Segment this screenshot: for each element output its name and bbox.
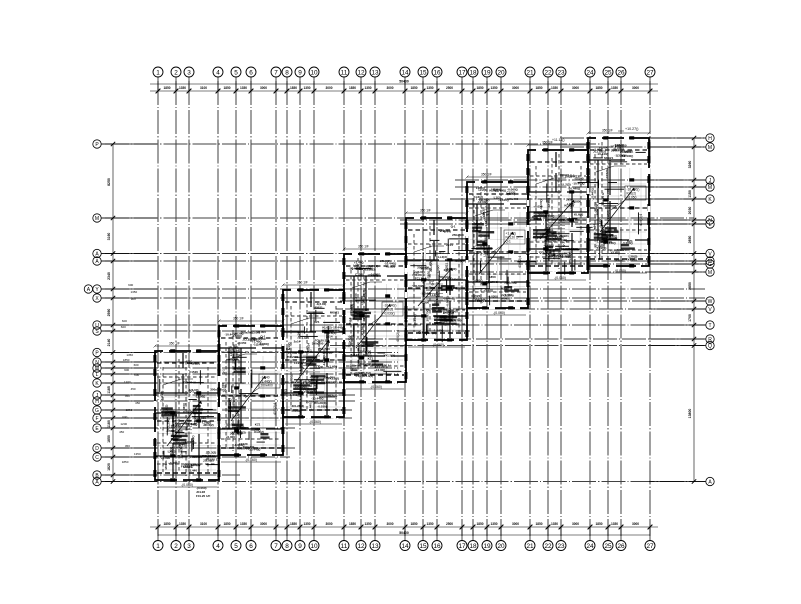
svg-text:3000: 3000 [386, 522, 393, 526]
svg-text:3000: 3000 [632, 86, 639, 90]
svg-text:1180: 1180 [107, 420, 111, 428]
svg-text:3000: 3000 [386, 86, 393, 90]
svg-text:3000: 3000 [512, 522, 519, 526]
svg-text:-(0.060): -(0.060) [493, 311, 505, 315]
svg-text:9: 9 [298, 69, 302, 76]
svg-text:6: 6 [249, 69, 253, 76]
svg-text:21: 21 [526, 69, 534, 76]
svg-text:16: 16 [433, 69, 441, 76]
svg-text:1350: 1350 [126, 353, 133, 357]
svg-text:17: 17 [458, 543, 466, 550]
svg-text:1850: 1850 [223, 86, 230, 90]
svg-text:+0.000: +0.000 [574, 177, 584, 181]
svg-text:23: 23 [557, 69, 565, 76]
svg-text:LL2(3): LL2(3) [569, 247, 578, 251]
svg-text:1850: 1850 [476, 522, 483, 526]
svg-text:450: 450 [119, 430, 124, 434]
svg-text:19: 19 [483, 543, 491, 550]
svg-text:1350: 1350 [611, 522, 618, 526]
svg-text:2x14: 2x14 [350, 353, 357, 357]
svg-text:14: 14 [401, 69, 409, 76]
svg-text:1350: 1350 [364, 86, 371, 90]
svg-text:-10.440(): -10.440() [596, 152, 608, 156]
svg-text:1: 1 [156, 543, 160, 550]
svg-text:26: 26 [617, 69, 625, 76]
svg-text:+0.000: +0.000 [288, 351, 298, 355]
svg-text:-10.440(): -10.440() [609, 144, 621, 148]
svg-text:21: 21 [526, 543, 534, 550]
svg-text:M: M [708, 270, 712, 276]
svg-text:200x400: 200x400 [174, 421, 186, 425]
svg-text:R: R [708, 337, 712, 343]
svg-text:1850: 1850 [122, 460, 129, 464]
svg-text:FCL20 1/F: FCL20 1/F [196, 494, 211, 498]
svg-text:1850: 1850 [349, 522, 356, 526]
svg-text:LL2(3): LL2(3) [430, 293, 439, 297]
svg-text:19: 19 [483, 69, 491, 76]
svg-text:5: 5 [234, 69, 238, 76]
svg-text:1850: 1850 [575, 199, 582, 203]
svg-text:1850: 1850 [223, 522, 230, 526]
svg-text:1350: 1350 [303, 86, 310, 90]
svg-text:L28(3): L28(3) [174, 454, 183, 458]
svg-text:1: 1 [156, 69, 160, 76]
svg-text:3100: 3100 [200, 86, 207, 90]
svg-text:1850: 1850 [535, 522, 542, 526]
svg-text:2340: 2340 [107, 272, 111, 280]
svg-text:8: 8 [285, 69, 289, 76]
svg-text:1350: 1350 [240, 522, 247, 526]
svg-text:+0.000: +0.000 [354, 293, 358, 303]
svg-text:600: 600 [122, 415, 127, 419]
svg-text:24: 24 [586, 69, 594, 76]
svg-text:M0921: M0921 [330, 311, 340, 315]
svg-text:-10.440(): -10.440() [568, 186, 580, 190]
svg-text:4: 4 [216, 69, 220, 76]
svg-text:G: G [708, 262, 712, 268]
svg-text:1850: 1850 [349, 86, 356, 90]
svg-text:JZL3(2): JZL3(2) [429, 261, 433, 272]
svg-text:2500: 2500 [446, 522, 453, 526]
svg-text:200x400: 200x400 [507, 197, 519, 201]
svg-text:1850: 1850 [595, 86, 602, 90]
svg-text:8: 8 [285, 543, 289, 550]
svg-text:+11.14(): +11.14() [552, 138, 564, 142]
svg-text:M0921: M0921 [604, 156, 614, 160]
svg-text:M0921: M0921 [452, 277, 462, 281]
svg-text:1350: 1350 [426, 86, 433, 90]
svg-text:-(0.060): -(0.060) [245, 458, 257, 462]
svg-text:T: T [708, 323, 711, 329]
svg-text:-12.00(): -12.00() [195, 395, 206, 399]
svg-text:8250: 8250 [107, 178, 111, 186]
svg-text:-(0.060): -(0.060) [181, 483, 193, 487]
svg-text:KZ1: KZ1 [501, 286, 507, 290]
svg-text:JZL3(2): JZL3(2) [367, 274, 378, 278]
svg-text:600: 600 [122, 319, 127, 323]
svg-text:22: 22 [544, 543, 552, 550]
svg-text:1850: 1850 [290, 86, 297, 90]
svg-text:11: 11 [341, 543, 348, 550]
svg-text:FCL20 1/: FCL20 1/ [486, 280, 499, 284]
svg-text:-0.060(): -0.060() [182, 403, 186, 414]
svg-text:7: 7 [274, 69, 278, 76]
svg-text:+10.27(): +10.27() [625, 127, 639, 131]
svg-text:1350: 1350 [490, 522, 497, 526]
svg-text:24: 24 [586, 543, 594, 550]
svg-text:27: 27 [646, 543, 654, 550]
svg-text:Q-1: Q-1 [222, 369, 226, 374]
svg-text:Q-1: Q-1 [430, 280, 434, 285]
svg-text:450: 450 [125, 394, 130, 398]
svg-text:3000: 3000 [260, 86, 267, 90]
svg-text:Q-1: Q-1 [439, 250, 444, 254]
svg-text:1350: 1350 [303, 522, 310, 526]
svg-text:L1(2): L1(2) [494, 196, 501, 200]
svg-text:M0921: M0921 [614, 259, 624, 263]
svg-text:JZL3(2): JZL3(2) [380, 259, 391, 263]
svg-text:1350: 1350 [179, 522, 186, 526]
svg-text:1850: 1850 [476, 86, 483, 90]
svg-text:M0921: M0921 [501, 296, 511, 300]
svg-text:1350: 1350 [551, 86, 558, 90]
svg-text:2500: 2500 [446, 86, 453, 90]
svg-text:3000: 3000 [572, 86, 579, 90]
svg-text:-(0.060): -(0.060) [370, 385, 382, 389]
svg-text:3: 3 [187, 543, 191, 550]
svg-text:M0921: M0921 [560, 173, 570, 177]
svg-text:YKL5(2): YKL5(2) [478, 198, 489, 202]
svg-text:1350: 1350 [551, 522, 558, 526]
svg-text:1850: 1850 [126, 408, 133, 412]
svg-text:1850: 1850 [535, 86, 542, 90]
svg-text:18: 18 [469, 543, 477, 550]
svg-text:1820: 1820 [107, 463, 111, 471]
svg-text:LL2(3): LL2(3) [294, 361, 303, 365]
svg-text:1850: 1850 [107, 435, 111, 443]
svg-text:3000: 3000 [260, 522, 267, 526]
svg-text:C1520: C1520 [239, 442, 248, 446]
svg-text:1350: 1350 [130, 290, 137, 294]
svg-text:Q: Q [708, 343, 712, 349]
svg-text:450: 450 [125, 444, 130, 448]
svg-text:-(0.060): -(0.060) [614, 269, 626, 273]
svg-text:20: 20 [497, 69, 505, 76]
svg-text:350 1/F: 350 1/F [169, 342, 180, 346]
svg-text:25: 25 [604, 69, 612, 76]
svg-text:KL6(2): KL6(2) [386, 265, 395, 269]
svg-text:1150: 1150 [688, 190, 692, 198]
svg-text:1850: 1850 [489, 275, 496, 279]
svg-text:15: 15 [419, 69, 427, 76]
svg-text:1200: 1200 [120, 422, 127, 426]
svg-text:3000: 3000 [325, 86, 332, 90]
svg-text:2x14: 2x14 [294, 339, 301, 343]
svg-text:2850: 2850 [688, 282, 692, 290]
svg-text:W: W [708, 299, 713, 305]
svg-text:3000: 3000 [632, 522, 639, 526]
svg-text:1350: 1350 [611, 86, 618, 90]
svg-text:M: M [95, 216, 99, 222]
svg-text:2x14: 2x14 [284, 389, 288, 396]
svg-text:-1.440: -1.440 [189, 469, 198, 473]
svg-text:KZ1: KZ1 [255, 422, 261, 426]
svg-text:300x700: 300x700 [475, 219, 479, 231]
svg-text:9: 9 [298, 543, 302, 550]
svg-text:H: H [95, 399, 99, 405]
svg-text:-(0.060): -(0.060) [432, 343, 444, 347]
svg-text:1200: 1200 [124, 380, 131, 384]
svg-text:5: 5 [234, 543, 238, 550]
svg-text:C1520: C1520 [596, 244, 605, 248]
svg-text:2140: 2140 [107, 339, 111, 347]
svg-text:2030: 2030 [688, 207, 692, 215]
svg-text:18: 18 [469, 69, 477, 76]
svg-text:YKL5(2): YKL5(2) [184, 463, 195, 467]
svg-text:LL2(3): LL2(3) [438, 255, 447, 259]
svg-text:250x500: 250x500 [359, 349, 371, 353]
svg-text:16: 16 [433, 543, 441, 550]
svg-text:13800: 13800 [688, 409, 692, 419]
svg-text:22: 22 [544, 69, 552, 76]
svg-text:17: 17 [458, 69, 466, 76]
svg-text:Q-1: Q-1 [418, 331, 423, 335]
svg-text:2x14: 2x14 [326, 335, 333, 339]
svg-text:-0.030(): -0.030() [259, 342, 270, 346]
svg-text:350 1/F: 350 1/F [233, 317, 244, 321]
svg-text:600: 600 [134, 363, 139, 367]
svg-text:4: 4 [216, 543, 220, 550]
svg-text:1850: 1850 [163, 86, 170, 90]
svg-text:KZ1: KZ1 [255, 427, 261, 431]
svg-text:13: 13 [371, 543, 379, 550]
svg-text:-0.060(): -0.060() [291, 409, 302, 413]
svg-text:20: 20 [497, 543, 505, 550]
svg-text:600: 600 [121, 325, 126, 329]
svg-text:11: 11 [341, 69, 348, 76]
svg-text:+1.40(): +1.40() [354, 260, 364, 264]
svg-text:KZ1: KZ1 [314, 320, 320, 324]
svg-text:C1520: C1520 [355, 272, 364, 276]
svg-text:3: 3 [187, 69, 191, 76]
svg-text:1850: 1850 [290, 522, 297, 526]
svg-text:KL6(2): KL6(2) [489, 188, 498, 192]
svg-text:14: 14 [401, 543, 409, 550]
svg-text:-0.030(): -0.030() [290, 374, 294, 385]
svg-text:1850: 1850 [410, 522, 417, 526]
svg-text:3000: 3000 [512, 86, 519, 90]
svg-text:3000: 3000 [572, 522, 579, 526]
svg-text:L: L [709, 222, 712, 228]
svg-text:1700: 1700 [688, 314, 692, 322]
svg-text:C1520: C1520 [189, 370, 198, 374]
svg-text:M0921: M0921 [314, 306, 324, 310]
svg-text:13: 13 [371, 69, 379, 76]
svg-text:2x14: 2x14 [566, 197, 573, 201]
svg-text:-0.030(): -0.030() [317, 405, 328, 409]
svg-text:250x500: 250x500 [452, 233, 464, 237]
svg-text:1850: 1850 [595, 522, 602, 526]
svg-text:3100: 3100 [200, 522, 207, 526]
svg-text:12: 12 [357, 69, 365, 76]
svg-text:10: 10 [310, 69, 318, 76]
svg-text:2: 2 [174, 543, 178, 550]
svg-text:3160: 3160 [107, 233, 111, 241]
svg-text:Q-1: Q-1 [451, 224, 456, 228]
svg-text:1350: 1350 [490, 86, 497, 90]
svg-text:+0.050: +0.050 [237, 341, 247, 345]
svg-text:1350: 1350 [179, 86, 186, 90]
svg-text:-(0.060): -(0.060) [554, 276, 566, 280]
svg-text:450: 450 [135, 401, 140, 405]
svg-text:-0.060(): -0.060() [507, 188, 518, 192]
svg-text:350 1/F: 350 1/F [297, 281, 308, 285]
svg-text:1350: 1350 [426, 522, 433, 526]
svg-text:1850: 1850 [163, 522, 170, 526]
svg-text:1850: 1850 [123, 358, 130, 362]
svg-text:450: 450 [131, 387, 136, 391]
svg-text:3260: 3260 [688, 161, 692, 169]
svg-text:3000: 3000 [325, 522, 332, 526]
svg-text:50400: 50400 [399, 531, 409, 535]
svg-text:-10.440(): -10.440() [590, 188, 594, 200]
svg-text:LL2(3): LL2(3) [478, 188, 487, 192]
svg-text:D: D [95, 446, 99, 452]
svg-text:23: 23 [557, 543, 565, 550]
svg-text:900: 900 [131, 297, 136, 301]
svg-text:900: 900 [124, 368, 129, 372]
svg-text:26: 26 [617, 543, 625, 550]
svg-text:-1(3.00): -1(3.00) [249, 330, 260, 334]
svg-text:900: 900 [128, 283, 133, 287]
svg-text:1850: 1850 [410, 86, 417, 90]
svg-text:M: M [708, 185, 712, 191]
svg-text:350 1/F: 350 1/F [481, 173, 492, 177]
svg-text:H: H [708, 136, 712, 142]
svg-text:1350: 1350 [134, 452, 141, 456]
svg-text:350 1/F: 350 1/F [358, 245, 369, 249]
svg-text:27: 27 [646, 69, 654, 76]
svg-text:-(0.060): -(0.060) [309, 420, 321, 424]
svg-text:M: M [708, 145, 712, 151]
svg-text:50400: 50400 [399, 80, 409, 84]
svg-text:12: 12 [357, 543, 365, 550]
svg-text:G: G [95, 408, 99, 414]
svg-text:1350: 1350 [240, 86, 247, 90]
svg-text:F: F [95, 416, 98, 422]
svg-text:1350: 1350 [364, 522, 371, 526]
svg-text:350 1/F: 350 1/F [602, 129, 613, 133]
svg-text:YKL5(2): YKL5(2) [626, 258, 637, 262]
svg-text:600: 600 [134, 373, 139, 377]
svg-text:L: L [96, 372, 99, 378]
svg-text:15: 15 [419, 543, 427, 550]
svg-text:2x14: 2x14 [297, 332, 301, 339]
svg-text:C: C [95, 455, 99, 461]
svg-text:2560: 2560 [107, 309, 111, 317]
svg-text:KL6(2): KL6(2) [574, 213, 583, 217]
svg-text:6: 6 [249, 543, 253, 550]
svg-text:-1(3.00): -1(3.00) [614, 154, 625, 158]
svg-text:-12.00(): -12.00() [539, 199, 543, 210]
svg-text:350 1/F: 350 1/F [420, 209, 431, 213]
svg-text:YKL5(2): YKL5(2) [452, 259, 463, 263]
svg-text:2: 2 [174, 69, 178, 76]
svg-text:2850: 2850 [688, 236, 692, 244]
svg-text:7: 7 [274, 543, 278, 550]
svg-text:1185: 1185 [107, 386, 111, 394]
svg-text:25: 25 [604, 543, 612, 550]
svg-text:10: 10 [310, 543, 318, 550]
svg-text:YKL5(2): YKL5(2) [384, 353, 395, 357]
